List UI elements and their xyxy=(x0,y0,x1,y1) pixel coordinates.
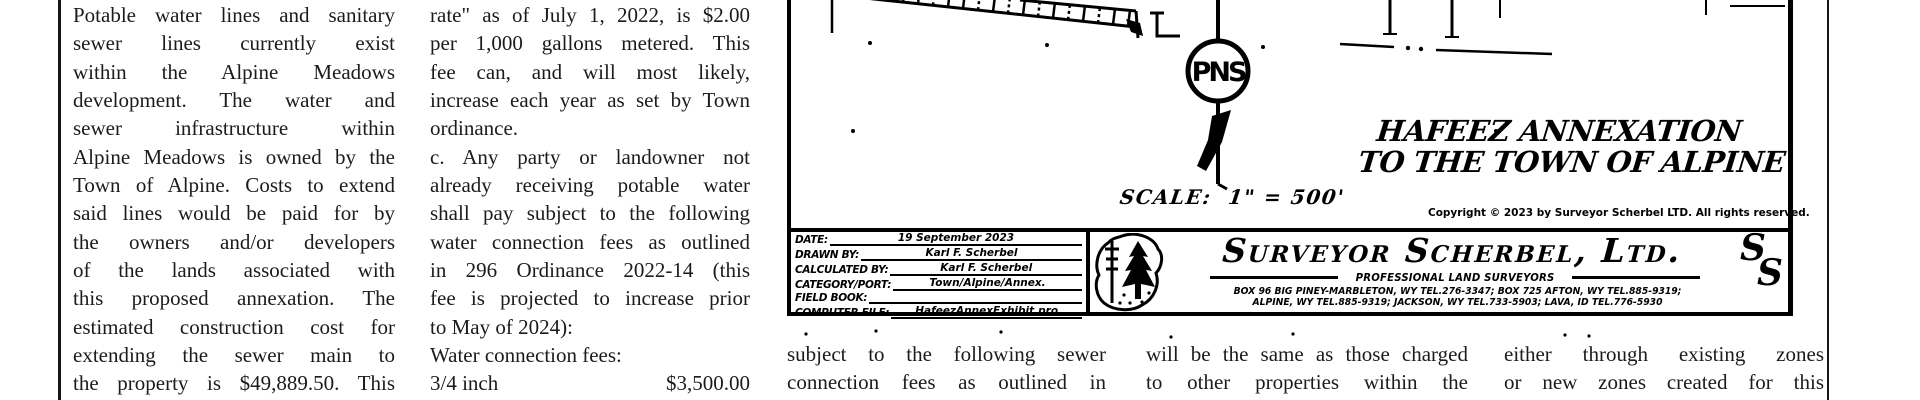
north-monogram-letters: PNS xyxy=(1192,57,1246,88)
lot-band xyxy=(846,0,1138,38)
section-marks xyxy=(1150,0,1785,54)
plat-linework: PNS xyxy=(0,0,1920,400)
north-arrow-flag xyxy=(1197,110,1231,171)
north-arrow: PNS xyxy=(1188,0,1248,189)
scanned-document-page: { "article": { "col1_lines": [ "Potable … xyxy=(0,0,1920,400)
